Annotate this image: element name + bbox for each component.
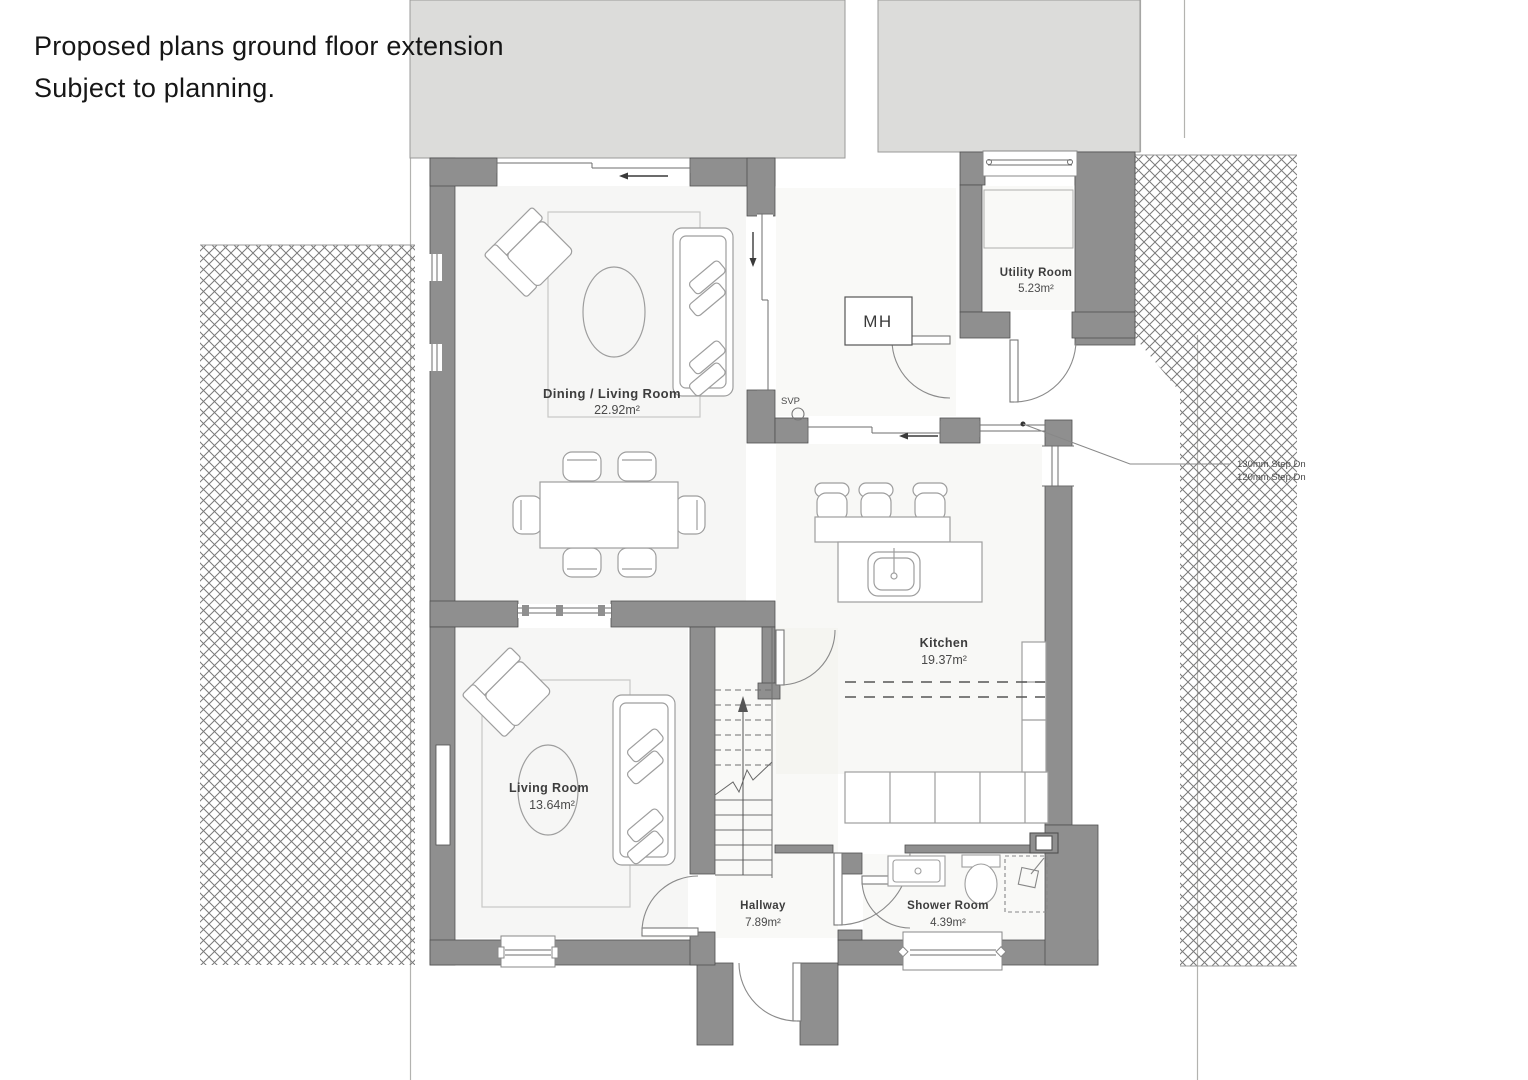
vanity-basin: [888, 856, 945, 886]
wall-segment: [611, 601, 775, 627]
window-kitchen-right: [1042, 446, 1074, 486]
porch-wall-left: [697, 963, 733, 1045]
window-living-front: [498, 936, 558, 967]
window-shower: [898, 932, 1006, 970]
kitchen-counter: [845, 772, 1048, 823]
manhole-label: MH: [863, 312, 892, 331]
wall-segment: [905, 845, 1048, 853]
room-name: Hallway: [740, 900, 786, 912]
dining-chair: [513, 496, 542, 534]
room-area: 7.89m²: [745, 917, 781, 929]
island-sink: [868, 548, 920, 596]
svp-label: SVP: [781, 396, 800, 407]
floor-plan-page: { "page": { "title_line1": "Proposed pla…: [0, 0, 1528, 1080]
wall-segment: [430, 940, 505, 965]
sofa: [613, 695, 675, 865]
garden-hatch-left: [200, 245, 415, 965]
wall-segment: [553, 940, 697, 965]
sofa: [673, 228, 733, 397]
window-internal: [518, 604, 611, 618]
floor-plan-drawing: MH SVP 130mm Step Dn 120mm Step Dn Dinin…: [0, 0, 1528, 1080]
wall-segment: [838, 940, 905, 965]
wall-segment: [1072, 312, 1135, 338]
door-utility-exit: [1010, 340, 1076, 402]
wall-segment: [690, 932, 715, 965]
bar-stool: [859, 483, 893, 521]
window-right-slider: [757, 214, 773, 390]
porch-wall-right: [800, 963, 838, 1045]
wall-segment: [775, 418, 808, 443]
window-top-slider: [497, 159, 690, 173]
page-title: Proposed plans ground floor extension Su…: [34, 26, 504, 110]
chimney-recess: [436, 745, 450, 845]
dining-table: [540, 482, 678, 548]
bar-stool: [913, 483, 947, 521]
tall-units: [1022, 642, 1046, 772]
arrow-top-slider: [619, 173, 668, 180]
room-name: Living Room: [509, 781, 589, 795]
window-utility: [983, 151, 1077, 176]
wall-segment: [940, 418, 980, 443]
wall-segment: [960, 185, 982, 312]
room-area: 5.23m²: [1018, 283, 1054, 295]
door-front-entrance: [739, 963, 801, 1021]
garden-hatch-right: [1133, 155, 1297, 966]
wall-segment: [747, 390, 775, 443]
wall-segment: [775, 845, 833, 853]
wall-segment: [430, 158, 455, 627]
wall-segment: [747, 158, 775, 216]
extract-duct: [1030, 833, 1058, 853]
arrow-right-slider: [750, 232, 757, 267]
room-area: 4.39m²: [930, 917, 966, 929]
window-left-b: [427, 344, 442, 371]
adjacent-building-right: [878, 0, 1140, 152]
step-note-line2: 120mm Step Dn: [1237, 472, 1306, 483]
wall-segment: [430, 601, 518, 627]
breakfast-bar: [815, 517, 950, 542]
room-name: Utility Room: [1000, 267, 1073, 279]
window-left-a: [427, 254, 442, 281]
room-name: Shower Room: [907, 900, 989, 912]
wall-segment: [430, 158, 497, 186]
dining-chair: [563, 452, 601, 481]
wall-segment: [838, 930, 862, 940]
bar-stool: [815, 483, 849, 521]
dining-chair: [618, 548, 656, 577]
adjacent-buildings: [410, 0, 1140, 158]
wall-segment: [690, 627, 715, 874]
room-name: Kitchen: [920, 636, 969, 650]
dining-chair: [618, 452, 656, 481]
wall-segment: [960, 152, 985, 185]
room-name: Dining / Living Room: [543, 386, 681, 401]
page-title-line2: Subject to planning.: [34, 68, 504, 110]
window-kitchen-slider: [808, 421, 940, 441]
room-area: 19.37m²: [921, 653, 967, 667]
wall-segment: [1045, 486, 1072, 825]
wall-segment: [1045, 420, 1072, 446]
page-title-line1: Proposed plans ground floor extension: [34, 26, 504, 68]
wall-segment: [960, 312, 1010, 338]
room-area: 13.64m²: [529, 798, 575, 812]
wall-segment: [762, 627, 775, 685]
dining-chair: [676, 496, 705, 534]
dining-chair: [563, 548, 601, 577]
room-area: 22.92m²: [594, 403, 640, 417]
step-note-line1: 130mm Step Dn: [1237, 459, 1306, 470]
